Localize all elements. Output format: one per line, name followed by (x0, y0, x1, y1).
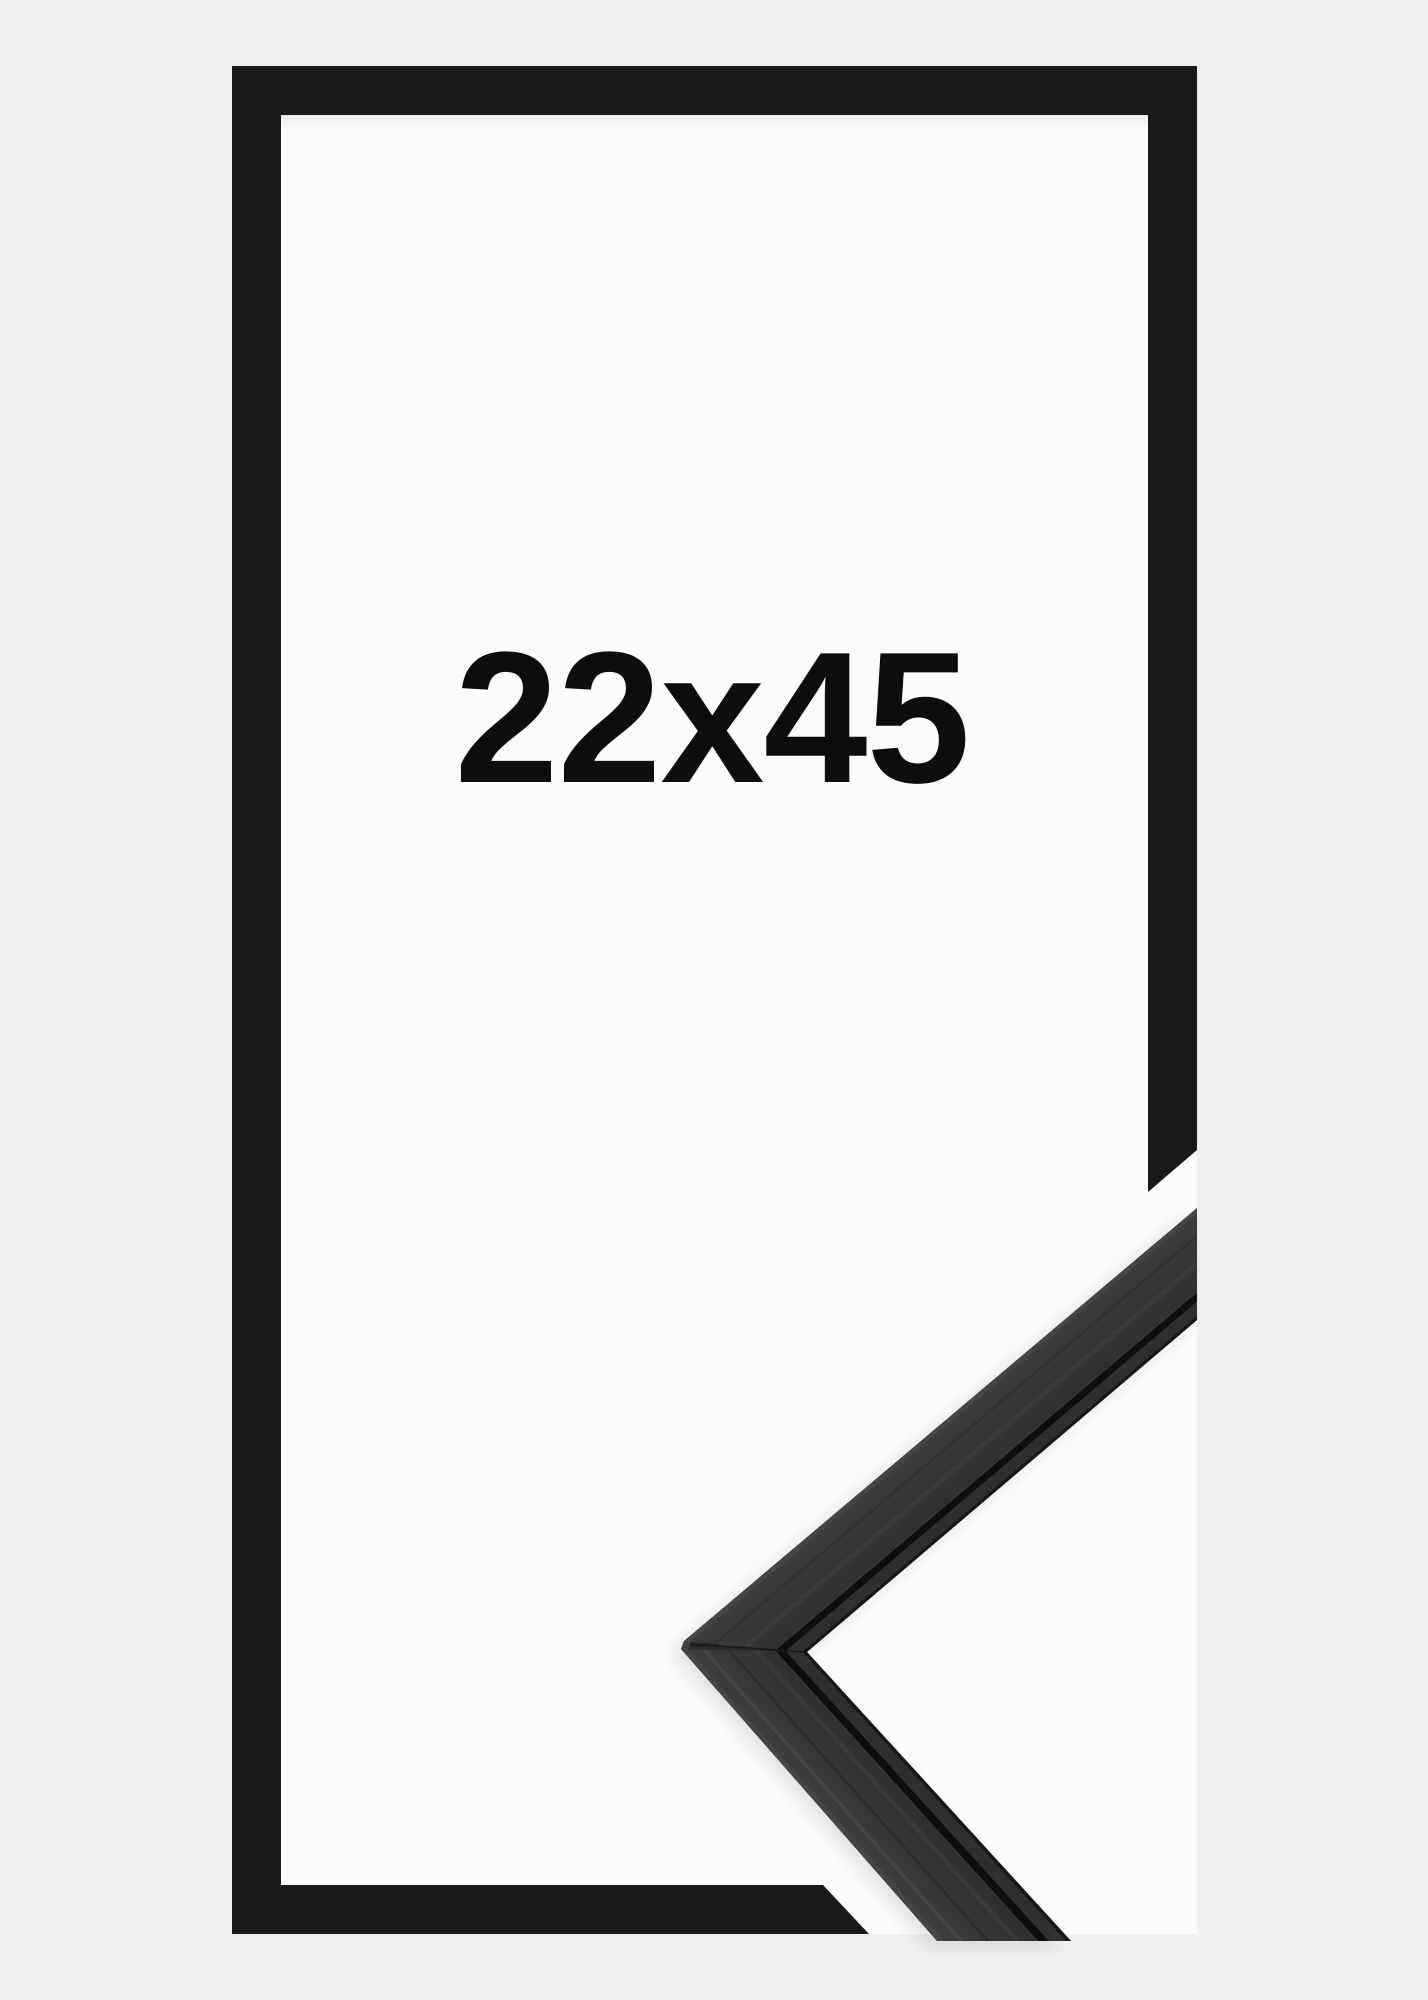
frame-inner-shadow (281, 115, 1148, 131)
product-image: 22x45 (0, 0, 1428, 2000)
size-label: 22x45 (454, 613, 969, 822)
frame-product-graphic: 22x45 (0, 0, 1428, 2000)
